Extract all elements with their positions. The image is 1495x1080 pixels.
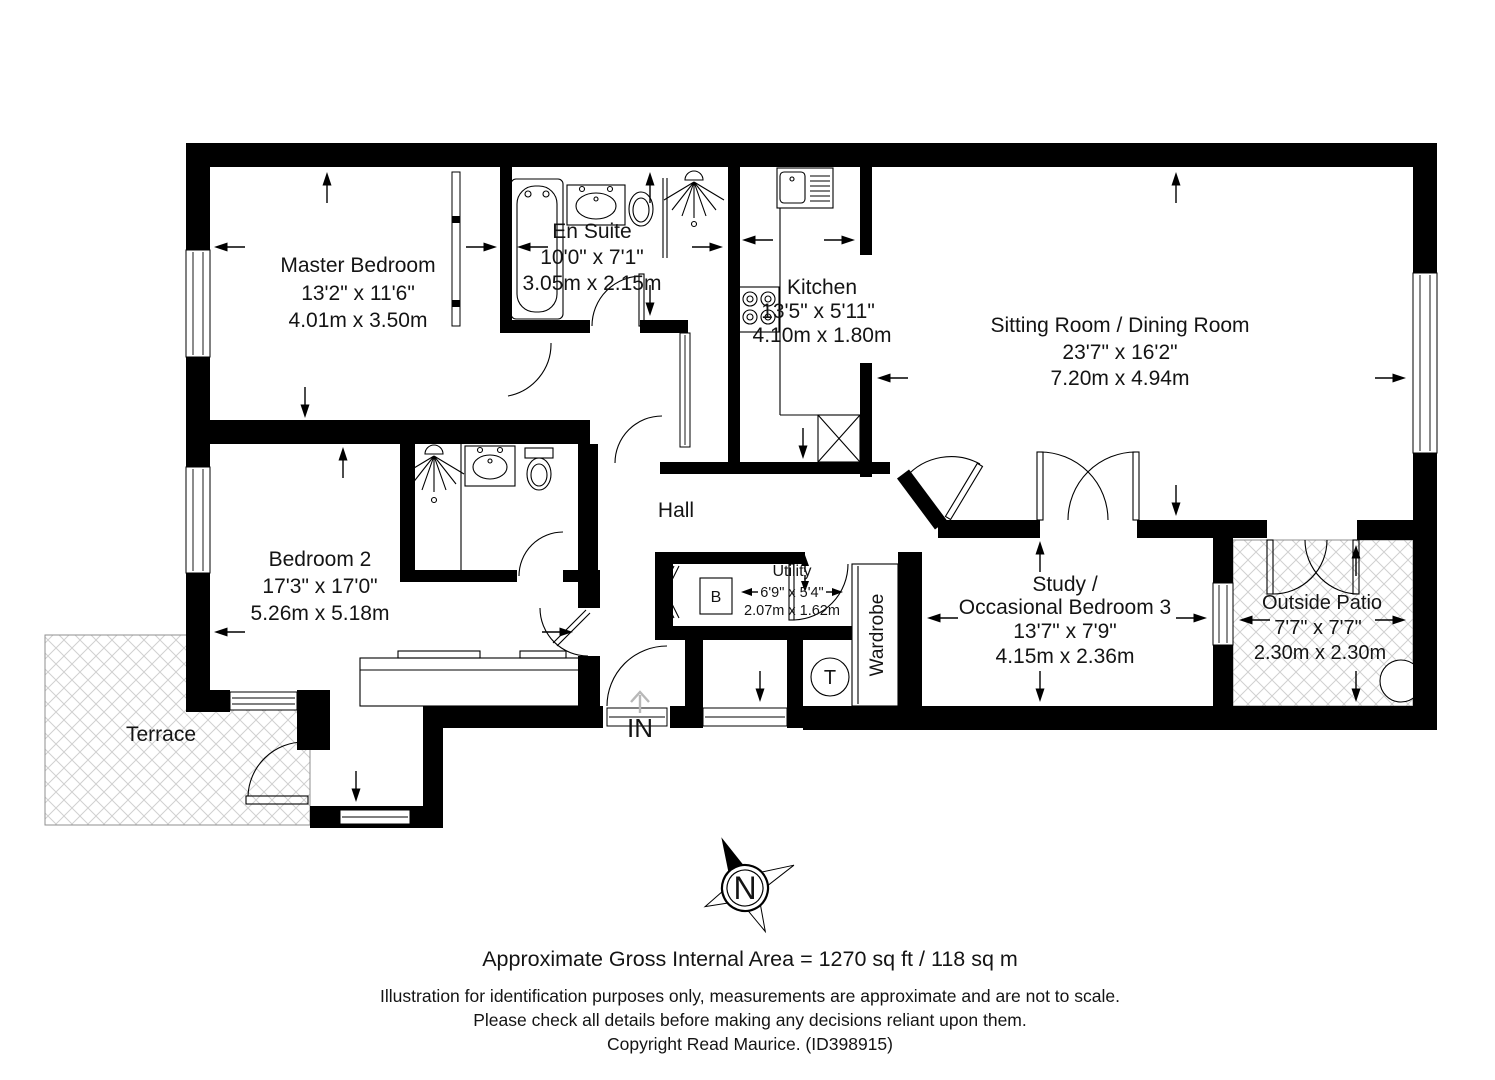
- svg-text:13'5" x 5'11": 13'5" x 5'11": [761, 300, 875, 323]
- svg-text:Study /: Study /: [1032, 573, 1098, 596]
- appliance-icon: [818, 415, 860, 462]
- svg-text:Outside Patio: Outside Patio: [1262, 592, 1382, 614]
- window-study-patio-icon: [1213, 583, 1233, 645]
- svg-text:4.01m x 3.50m: 4.01m x 3.50m: [289, 309, 428, 332]
- compass-icon: N: [681, 814, 814, 950]
- svg-text:5.26m x 5.18m: 5.26m x 5.18m: [251, 602, 390, 625]
- floorplan-page: Master Bedroom 13'2" x 11'6" 4.01m x 3.5…: [0, 0, 1495, 1080]
- tank-label: T: [824, 667, 836, 689]
- svg-text:Sitting Room / Dining Room: Sitting Room / Dining Room: [990, 314, 1249, 337]
- svg-text:7'7" x 7'7": 7'7" x 7'7": [1274, 617, 1361, 639]
- svg-text:4.10m x 1.80m: 4.10m x 1.80m: [753, 324, 892, 347]
- room-label-study: Study / Occasional Bedroom 3 13'7" x 7'9…: [959, 573, 1171, 668]
- svg-text:13'7" x 7'9": 13'7" x 7'9": [1013, 620, 1117, 643]
- room-label-master-bedroom: Master Bedroom 13'2" x 11'6" 4.01m x 3.5…: [280, 254, 435, 332]
- copyright-line: Copyright Read Maurice. (ID398915): [607, 1034, 893, 1054]
- room-label-wardrobe: Wardrobe: [867, 594, 888, 677]
- ensuite-sink-icon: [567, 185, 625, 225]
- window-sitting-right-icon: [1413, 273, 1437, 453]
- svg-text:6'9" x 5'4": 6'9" x 5'4": [760, 585, 823, 601]
- svg-text:Kitchen: Kitchen: [787, 276, 857, 299]
- floorplan-drawing: Master Bedroom 13'2" x 11'6" 4.01m x 3.5…: [0, 0, 1495, 1080]
- svg-text:4.15m x 2.36m: 4.15m x 2.36m: [996, 645, 1135, 668]
- door-master-bedroom-icon: [508, 343, 551, 396]
- boiler-label: B: [711, 589, 722, 606]
- svg-text:Hall: Hall: [658, 499, 694, 522]
- svg-text:23'7" x 16'2": 23'7" x 16'2": [1062, 341, 1177, 364]
- room-label-terrace: Terrace: [126, 723, 196, 746]
- room-label-en-suite: En Suite 10'0" x 7'1" 3.05m x 2.15m: [523, 220, 662, 295]
- bedroom2-fitted-wardrobe-icon: [360, 651, 583, 706]
- compass-north-label: N: [733, 870, 756, 906]
- window-master-left-icon: [186, 250, 210, 357]
- room-label-bedroom-2: Bedroom 2 17'3" x 17'0" 5.26m x 5.18m: [251, 548, 390, 625]
- door-shower-room-icon: [519, 532, 563, 576]
- room-label-utility: Utility 6'9" x 5'4" 2.07m x 1.62m: [744, 563, 840, 619]
- svg-text:Utility: Utility: [772, 563, 811, 580]
- door-hall-lobby-icon: [615, 416, 662, 463]
- svg-text:Terrace: Terrace: [126, 723, 196, 746]
- svg-text:2.07m x 1.62m: 2.07m x 1.62m: [744, 603, 840, 619]
- svg-text:10'0" x 7'1": 10'0" x 7'1": [540, 246, 644, 269]
- threshold-porch-icon: [703, 708, 787, 726]
- bedroom2-sink-icon: [465, 446, 515, 486]
- disclaimer-line-2: Please check all details before making a…: [473, 1010, 1027, 1030]
- window-bedroom2-left-icon: [186, 467, 210, 573]
- svg-text:Bedroom 2: Bedroom 2: [269, 548, 372, 571]
- svg-text:Occasional Bedroom 3: Occasional Bedroom 3: [959, 596, 1171, 619]
- bedroom2-toilet-icon: [525, 448, 553, 490]
- walls: [186, 143, 1437, 828]
- svg-text:En Suite: En Suite: [552, 220, 631, 243]
- wardrobe-front-master-icon: [452, 172, 460, 326]
- disclaimer-line-1: Illustration for identification purposes…: [380, 986, 1120, 1006]
- kitchen-sink-icon: [777, 168, 833, 208]
- entrance-label: IN: [627, 713, 653, 743]
- svg-text:7.20m x 4.94m: 7.20m x 4.94m: [1051, 367, 1190, 390]
- threshold-store-icon: [340, 810, 410, 824]
- glazed-screen-hall-icon: [680, 333, 690, 447]
- svg-text:3.05m x 2.15m: 3.05m x 2.15m: [523, 272, 662, 295]
- svg-text:Wardrobe: Wardrobe: [867, 594, 888, 677]
- svg-text:2.30m x 2.30m: 2.30m x 2.30m: [1254, 642, 1386, 664]
- svg-text:17'3" x 17'0": 17'3" x 17'0": [262, 575, 377, 598]
- svg-text:Master Bedroom: Master Bedroom: [280, 254, 435, 277]
- svg-text:13'2" x 11'6": 13'2" x 11'6": [301, 282, 415, 305]
- area-summary: Approximate Gross Internal Area = 1270 s…: [482, 947, 1018, 971]
- window-bedroom2-bottom-icon: [230, 692, 297, 710]
- room-label-sitting-dining: Sitting Room / Dining Room 23'7" x 16'2"…: [990, 314, 1249, 390]
- room-label-hall: Hall: [658, 499, 694, 522]
- french-doors-study-icon: [1037, 452, 1139, 520]
